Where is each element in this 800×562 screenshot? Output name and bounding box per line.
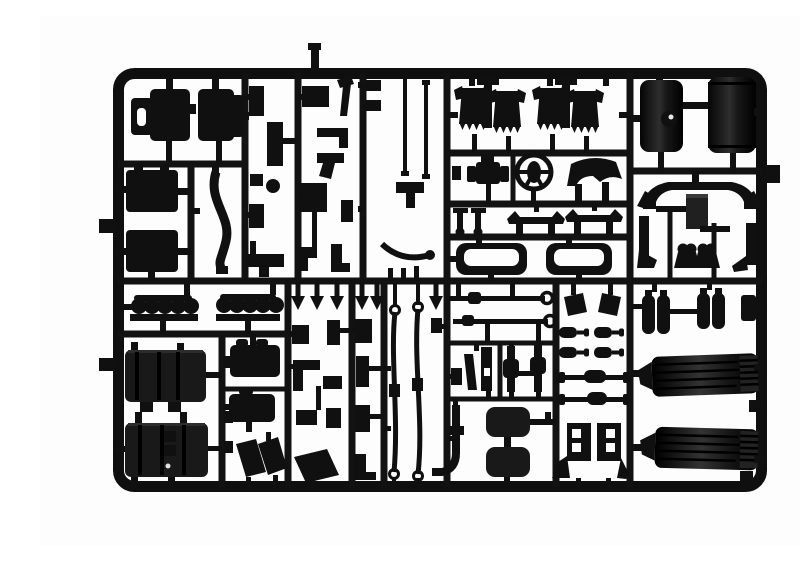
part-cylinder-rows (118, 284, 284, 334)
part-axle-rods (556, 370, 631, 405)
mudguard-2-stub-right (754, 456, 764, 463)
part-dashboard-cowl (567, 158, 622, 204)
part-mudguard-2 (639, 426, 758, 470)
part-cab-door-panels (131, 77, 249, 164)
part-storage-trays (447, 237, 612, 282)
part-fittings-column-3 (352, 319, 384, 480)
part-shock-absorbers (559, 283, 624, 358)
part-air-reservoirs (631, 283, 763, 334)
part-gearbox-halves (222, 334, 280, 432)
part-air-tanks-square (486, 407, 556, 487)
mudguard-2-bottom-nub (740, 471, 753, 481)
part-curved-brace (191, 164, 228, 274)
part-tie-rods (447, 283, 556, 343)
sprue-svg (40, 16, 800, 546)
ejector-tab-left-1 (99, 219, 115, 233)
part-fuel-tanks (630, 73, 763, 171)
part-arrow-pins (291, 283, 443, 310)
part-cab-floor-panels (113, 164, 191, 281)
part-fittings-column-2 (288, 320, 352, 487)
part-grab-rails (507, 204, 623, 236)
mudguard-1-stub-left (631, 370, 643, 377)
part-mud-flaps-left (236, 432, 287, 487)
part-mudguard-1 (637, 353, 758, 397)
part-suspension-links (447, 343, 546, 399)
part-mushroom-posts (453, 208, 486, 237)
mudguard-spacer-nub (749, 400, 762, 412)
part-panel-plate (686, 194, 708, 229)
sprue-photo (40, 16, 800, 546)
part-steering-wheel (513, 150, 551, 204)
ejector-tab-left-2 (99, 358, 115, 371)
part-antenna-rods (363, 74, 435, 281)
mudguard-1-stub-right (754, 364, 764, 371)
ejector-tab-right (763, 165, 780, 183)
part-seat-backs (447, 78, 630, 153)
part-battery-boxes (113, 342, 233, 487)
mudguard-2-stub-left (631, 444, 643, 451)
part-bracket-cluster (298, 76, 363, 272)
part-leaf-springs (384, 283, 447, 487)
ejector-tab-top (308, 43, 321, 70)
part-seat-base (452, 154, 509, 204)
part-boot-brackets (552, 423, 629, 487)
part-fittings-column-1 (245, 86, 298, 277)
